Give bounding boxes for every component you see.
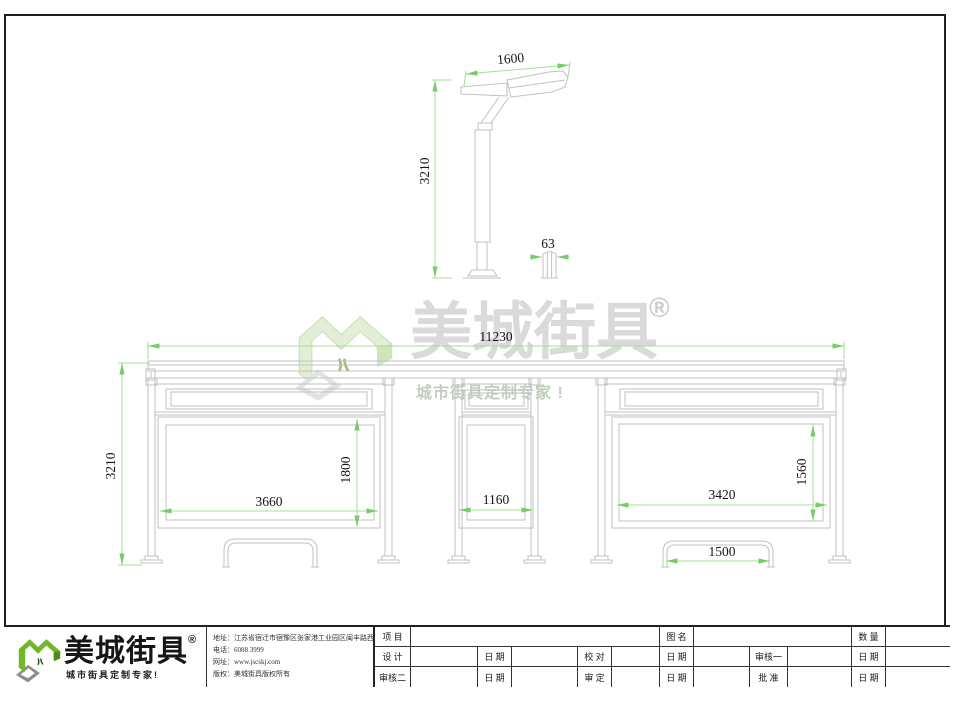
titleblock-value xyxy=(512,647,578,667)
titleblock-label-date: 日 期 xyxy=(660,647,694,667)
left-panel-width-dim: 3660 xyxy=(256,494,283,509)
titleblock-label-designer: 设 计 xyxy=(375,647,411,667)
titleblock-value xyxy=(612,667,660,687)
company-brand-name: 美城街具 xyxy=(64,635,188,668)
bench-width-dim: 1500 xyxy=(709,544,736,559)
shelter-roof xyxy=(146,361,846,380)
bollard-detail: 63 xyxy=(530,236,569,278)
lamp-height-dim: 3210 xyxy=(417,157,432,184)
titleblock-value xyxy=(886,667,950,687)
titleblock-value-quantity xyxy=(886,627,950,647)
drawing-sheet: 美城街具 ® 城市街具定制专家 ! 1600 3210 xyxy=(0,0,960,704)
shelter-front-elevation: 11230 3210 xyxy=(103,329,850,567)
titleblock-value xyxy=(694,667,750,687)
titleblock-value xyxy=(788,647,852,667)
contact-phone: 电话：6088 3999 xyxy=(213,645,373,657)
logo-cell: 美城街具® 城市街具定制专家! xyxy=(4,627,207,687)
titleblock-value xyxy=(411,667,478,687)
titleblock-label-date: 日 期 xyxy=(478,667,512,687)
lamp-arm xyxy=(461,83,507,96)
bollard-width-dim: 63 xyxy=(541,236,555,251)
middle-panel-width-dim: 1160 xyxy=(483,492,510,507)
titleblock-label-date: 日 期 xyxy=(478,647,512,667)
footer-band: 美城街具® 城市街具定制专家! 地址：江苏省宿迁市宿豫区张家港工业园区闽丰路西侧… xyxy=(4,625,950,687)
titleblock-label-date: 日 期 xyxy=(852,667,886,687)
registered-icon: ® xyxy=(188,634,196,646)
titleblock-value xyxy=(512,667,578,687)
technical-drawing: 1600 3210 63 xyxy=(0,0,960,625)
titleblock-label-proofread: 校 对 xyxy=(578,647,612,667)
titleblock-value xyxy=(411,647,478,667)
left-panel-height-dim: 1800 xyxy=(338,456,353,483)
title-block: 项 目 图 名 数 量 设 计 日 期 校 对 日 期 审核一 日 期 审核二 … xyxy=(375,627,950,687)
titleblock-label-authorizer: 批 准 xyxy=(750,667,788,687)
titleblock-value xyxy=(612,647,660,667)
titleblock-label-approver: 审 定 xyxy=(578,667,612,687)
titleblock-value xyxy=(788,667,852,687)
titleblock-label-quantity: 数 量 xyxy=(852,627,886,647)
titleblock-value xyxy=(694,647,750,667)
shelter-total-width-dim: 11230 xyxy=(479,329,512,344)
shelter-header-signs xyxy=(155,384,836,415)
right-panel-width-dim: 3420 xyxy=(709,487,736,502)
contact-copyright: 版权：美城街具版权所有 xyxy=(213,669,373,681)
titleblock-label-reviewer-2: 审核二 xyxy=(375,667,411,687)
shelter-height-dim: 3210 xyxy=(103,452,118,479)
company-brand-text: 美城街具® xyxy=(64,635,196,667)
titleblock-label-drawing-name: 图 名 xyxy=(660,627,694,647)
company-logo-icon xyxy=(16,632,62,684)
titleblock-label-date: 日 期 xyxy=(660,667,694,687)
titleblock-label-project: 项 目 xyxy=(375,627,411,647)
lamp-pole xyxy=(475,130,490,242)
titleblock-value-drawing-name xyxy=(694,627,852,647)
right-panel-height-dim: 1560 xyxy=(794,458,809,485)
titleblock-value-project xyxy=(411,627,660,647)
titleblock-label-reviewer-1: 审核一 xyxy=(750,647,788,667)
titleblock-label-date: 日 期 xyxy=(852,647,886,667)
lamp-width-dim: 1600 xyxy=(497,50,525,67)
contact-address: 地址：江苏省宿迁市宿豫区张家港工业园区闽丰路西侧1号 xyxy=(213,633,373,645)
shelter-benches: 1500 xyxy=(222,539,775,567)
company-tagline: 城市街具定制专家! xyxy=(66,668,159,681)
contact-website: 网址：www.jscskj.com xyxy=(213,657,373,669)
titleblock-value xyxy=(886,647,950,667)
lamp-side-view: 1600 3210 63 xyxy=(417,50,570,278)
contact-info: 地址：江苏省宿迁市宿豫区张家港工业园区闽丰路西侧1号 电话：6088 3999 … xyxy=(207,627,375,687)
